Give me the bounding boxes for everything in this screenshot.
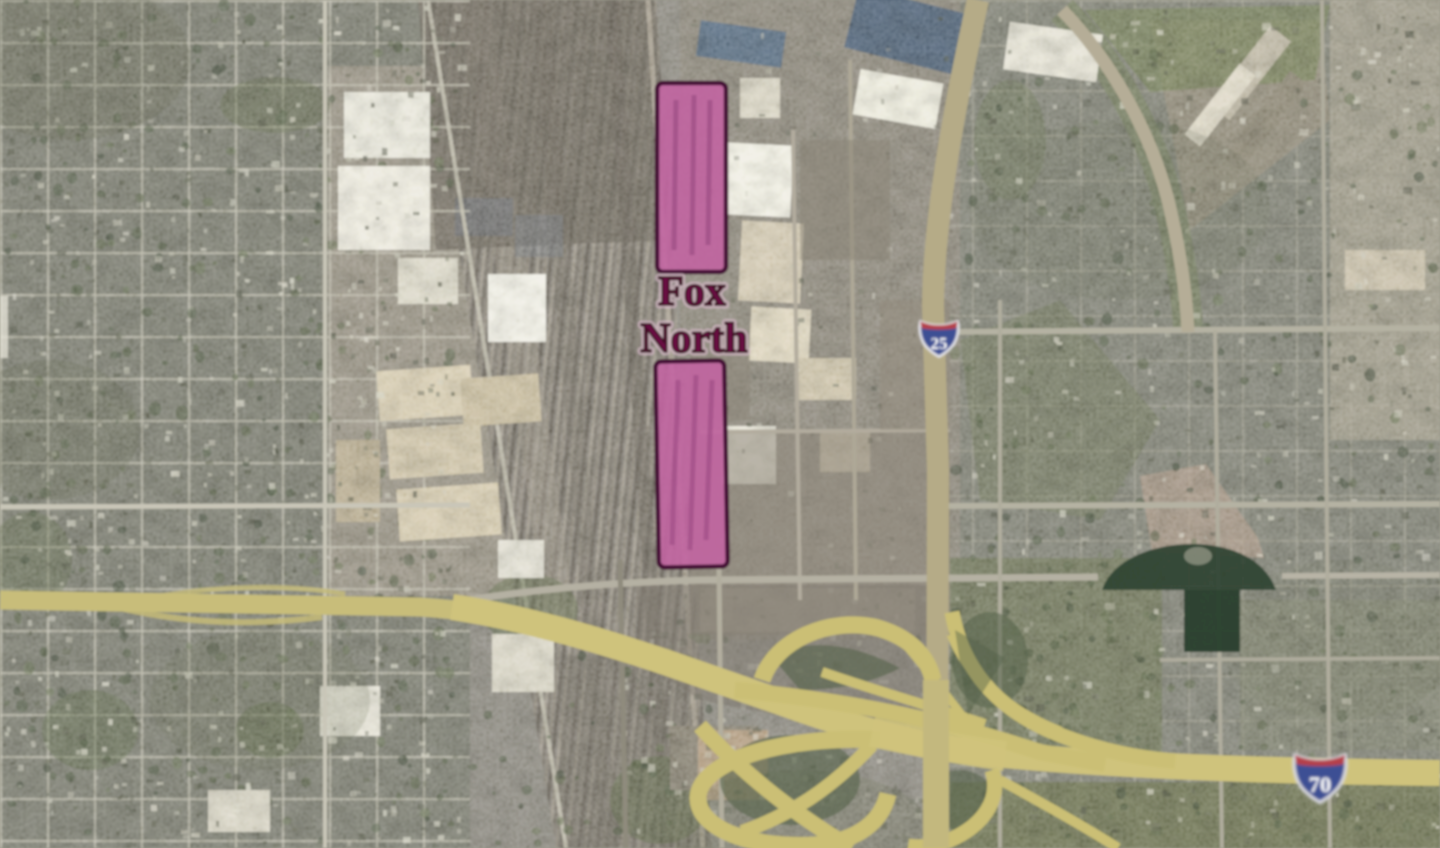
svg-text:25: 25 — [931, 334, 948, 353]
svg-text:70: 70 — [1309, 772, 1331, 797]
svg-text:Fox: Fox — [658, 269, 726, 315]
svg-text:North: North — [640, 316, 747, 362]
